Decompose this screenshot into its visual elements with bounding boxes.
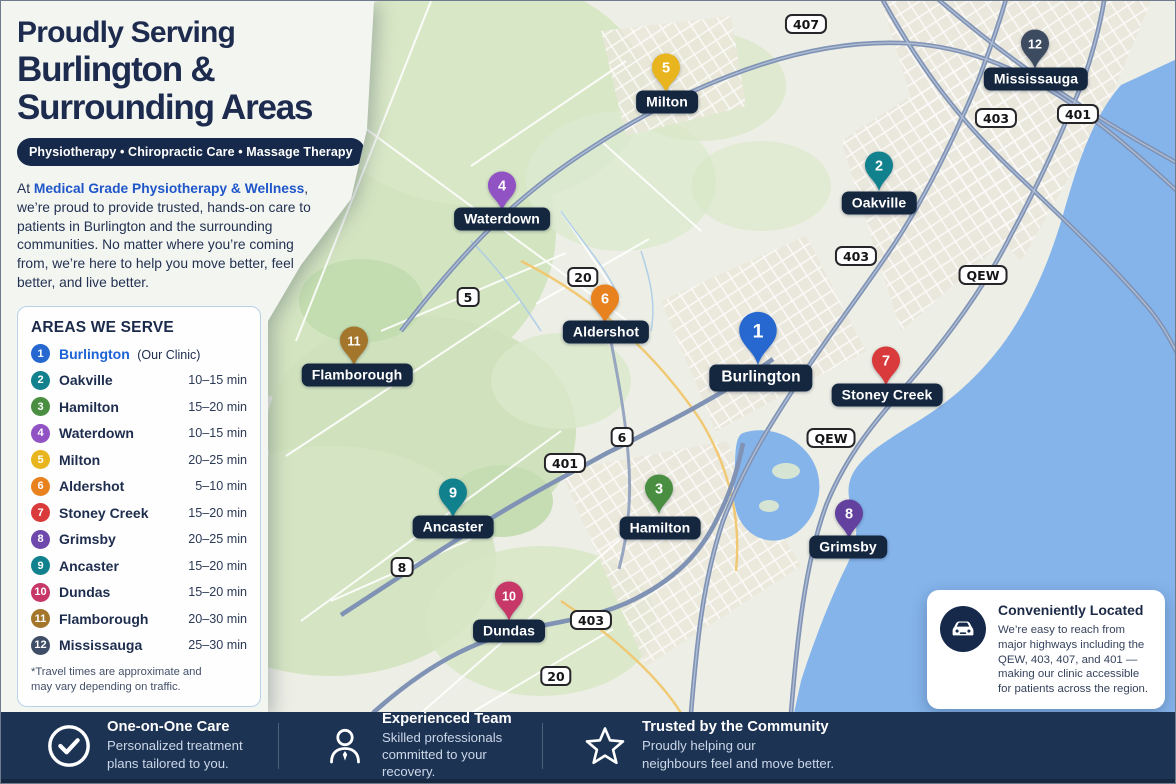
svg-text:10: 10 — [502, 589, 516, 603]
area-name: Burlington (Our Clinic) — [59, 346, 200, 362]
map-label-milton: Milton — [636, 91, 698, 114]
area-name: Oakville — [59, 372, 113, 388]
highway-badge-6-7: 6 — [611, 427, 634, 447]
feature-line1: Skilled professionals — [382, 729, 542, 746]
area-name: Hamilton — [59, 399, 119, 415]
map-pin-hamilton[interactable]: 3 — [644, 474, 675, 515]
feature-line2: committed to your recovery. — [382, 746, 542, 780]
title-line-1: Proudly Serving — [17, 15, 367, 51]
area-row-milton: 5Milton20–25 min — [31, 450, 247, 469]
map-label-dundas: Dundas — [473, 620, 545, 643]
feature-line1: Proudly helping our — [642, 737, 834, 754]
area-name: Dundas — [59, 584, 110, 600]
map-pin-stoney-creek[interactable]: 7 — [871, 346, 902, 387]
intro-paragraph: At Medical Grade Physiotherapy & Wellnes… — [17, 180, 315, 293]
map-pin-mississauga[interactable]: 12 — [1020, 29, 1051, 70]
infographic-root: 407403401403QEW2056QEW401840320 1Burling… — [0, 0, 1176, 784]
feature-text: Experienced TeamSkilled professionalscom… — [382, 711, 542, 780]
feature-title: Trusted by the Community — [642, 719, 834, 735]
svg-text:8: 8 — [845, 506, 853, 522]
map-pin-waterdown[interactable]: 4 — [487, 171, 518, 212]
svg-text:1: 1 — [753, 320, 764, 342]
check-circle-icon — [46, 723, 92, 769]
feature-one-on-one-care: One-on-One CarePersonalized treatmentpla… — [1, 712, 278, 779]
title-line-2: Burlington & — [17, 51, 367, 89]
area-name: Aldershot — [59, 478, 124, 494]
map-label-waterdown: Waterdown — [454, 208, 550, 231]
feature-line2: neighbours feel and move better. — [642, 755, 834, 772]
map-pin-dundas[interactable]: 10 — [494, 581, 525, 622]
area-row-oakville: 2Oakville10–15 min — [31, 371, 247, 390]
highway-badge-qew-4: QEW — [959, 265, 1008, 285]
map-pin-milton[interactable]: 5 — [651, 53, 682, 94]
svg-text:7: 7 — [882, 353, 890, 369]
location-card-title: Conveniently Located — [998, 602, 1152, 618]
area-travel-time: 15–20 min — [188, 559, 247, 573]
area-number-badge: 5 — [31, 450, 50, 469]
feature-trusted-by-the-community: Trusted by the CommunityProudly helping … — [543, 712, 834, 779]
area-number-badge: 6 — [31, 477, 50, 496]
area-number-badge: 1 — [31, 344, 50, 363]
feature-experienced-team: Experienced TeamSkilled professionalscom… — [279, 712, 542, 779]
area-travel-time: 15–20 min — [188, 400, 247, 414]
feature-text: One-on-One CarePersonalized treatmentpla… — [107, 719, 243, 771]
area-row-waterdown: 4Waterdown10–15 min — [31, 424, 247, 443]
intro-prefix: At — [17, 181, 34, 196]
map-pin-burlington[interactable]: 1 — [737, 311, 779, 366]
area-note: (Our Clinic) — [134, 348, 201, 362]
area-row-mississauga: 12Mississauga25–30 min — [31, 636, 247, 655]
area-row-aldershot: 6Aldershot5–10 min — [31, 477, 247, 496]
feature-title: Experienced Team — [382, 711, 542, 727]
area-number-badge: 3 — [31, 397, 50, 416]
area-name: Milton — [59, 452, 100, 468]
highway-badge-403-1: 403 — [975, 108, 1017, 128]
area-travel-time: 25–30 min — [188, 638, 247, 652]
svg-text:5: 5 — [662, 60, 670, 76]
area-number-badge: 11 — [31, 609, 50, 628]
svg-text:4: 4 — [498, 178, 506, 194]
area-name: Flamborough — [59, 611, 148, 627]
map-label-hamilton: Hamilton — [620, 517, 701, 540]
map-label-ancaster: Ancaster — [413, 516, 494, 539]
area-name: Ancaster — [59, 558, 119, 574]
area-name: Grimsby — [59, 531, 116, 547]
svg-text:2: 2 — [875, 158, 883, 174]
map-pin-oakville[interactable]: 2 — [864, 151, 895, 192]
svg-text:9: 9 — [449, 485, 457, 501]
highway-badge-8-10: 8 — [391, 557, 414, 577]
area-name: Waterdown — [59, 425, 134, 441]
area-travel-time: 5–10 min — [195, 479, 247, 493]
areas-we-serve-card: AREAS WE SERVE 1Burlington (Our Clinic)2… — [17, 306, 261, 707]
area-travel-time: 15–20 min — [188, 506, 247, 520]
location-card-body: We’re easy to reach from major highways … — [998, 623, 1152, 697]
area-row-hamilton: 3Hamilton15–20 min — [31, 397, 247, 416]
intro-suffix: , we’re proud to provide trusted, hands-… — [17, 181, 311, 290]
highway-badge-403-11: 403 — [570, 610, 612, 630]
area-row-ancaster: 9Ancaster15–20 min — [31, 556, 247, 575]
services-pill: Physiotherapy • Chiropractic Care • Mass… — [17, 138, 365, 166]
conveniently-located-card: Conveniently Located We’re easy to reach… — [927, 590, 1165, 709]
map-label-aldershot: Aldershot — [563, 321, 649, 344]
title-line-3: Surrounding Areas — [17, 89, 367, 127]
car-icon — [940, 606, 986, 652]
map-label-mississauga: Mississauga — [984, 68, 1088, 91]
feature-title: One-on-One Care — [107, 719, 243, 735]
area-number-badge: 9 — [31, 556, 50, 575]
page-title: Proudly Serving Burlington & Surrounding… — [17, 15, 367, 127]
area-number-badge: 12 — [31, 636, 50, 655]
map-pin-grimsby[interactable]: 8 — [834, 499, 865, 540]
map-label-oakville: Oakville — [842, 192, 917, 215]
area-row-stoney-creek: 7Stoney Creek15–20 min — [31, 503, 247, 522]
feature-line1: Personalized treatment — [107, 737, 243, 754]
map-pin-ancaster[interactable]: 9 — [438, 478, 469, 519]
area-row-burlington: 1Burlington (Our Clinic) — [31, 344, 247, 363]
area-row-flamborough: 11Flamborough20–30 min — [31, 609, 247, 628]
area-row-dundas: 10Dundas15–20 min — [31, 583, 247, 602]
highway-badge-qew-8: QEW — [807, 428, 856, 448]
areas-list: 1Burlington (Our Clinic)2Oakville10–15 m… — [31, 344, 247, 655]
area-travel-time: 15–20 min — [188, 585, 247, 599]
feature-text: Trusted by the CommunityProudly helping … — [642, 719, 834, 771]
left-panel: Proudly Serving Burlington & Surrounding… — [1, 1, 383, 713]
area-travel-time: 10–15 min — [188, 426, 247, 440]
footer-bar: One-on-One CarePersonalized treatmentpla… — [1, 712, 1176, 784]
svg-text:3: 3 — [655, 481, 663, 497]
map-pin-aldershot[interactable]: 6 — [590, 284, 621, 325]
area-number-badge: 10 — [31, 583, 50, 602]
brand-name: Medical Grade Physiotherapy & Wellness — [34, 181, 304, 196]
area-number-badge: 7 — [31, 503, 50, 522]
map-label-burlington: Burlington — [709, 365, 812, 392]
highway-badge-401-2: 401 — [1057, 104, 1099, 124]
highway-badge-5-6: 5 — [457, 287, 480, 307]
area-number-badge: 2 — [31, 371, 50, 390]
area-number-badge: 8 — [31, 530, 50, 549]
svg-text:12: 12 — [1028, 37, 1042, 51]
star-icon — [583, 724, 627, 768]
feature-line2: plans tailored to you. — [107, 755, 243, 772]
map-label-stoney-creek: Stoney Creek — [832, 384, 943, 407]
highway-badge-403-3: 403 — [835, 246, 877, 266]
areas-footnote: *Travel times are approximate and may va… — [31, 665, 209, 695]
svg-text:6: 6 — [601, 291, 609, 307]
highway-badge-20-12: 20 — [540, 666, 571, 686]
highway-badge-407-0: 407 — [785, 14, 827, 34]
map-label-grimsby: Grimsby — [809, 536, 887, 559]
area-travel-time: 10–15 min — [188, 373, 247, 387]
area-travel-time: 20–30 min — [188, 612, 247, 626]
area-number-badge: 4 — [31, 424, 50, 443]
area-row-grimsby: 8Grimsby20–25 min — [31, 530, 247, 549]
highway-badge-401-9: 401 — [544, 453, 586, 473]
area-name: Stoney Creek — [59, 505, 148, 521]
person-icon — [323, 724, 367, 768]
area-travel-time: 20–25 min — [188, 532, 247, 546]
areas-card-title: AREAS WE SERVE — [31, 319, 247, 337]
area-travel-time: 20–25 min — [188, 453, 247, 467]
area-name: Mississauga — [59, 637, 142, 653]
